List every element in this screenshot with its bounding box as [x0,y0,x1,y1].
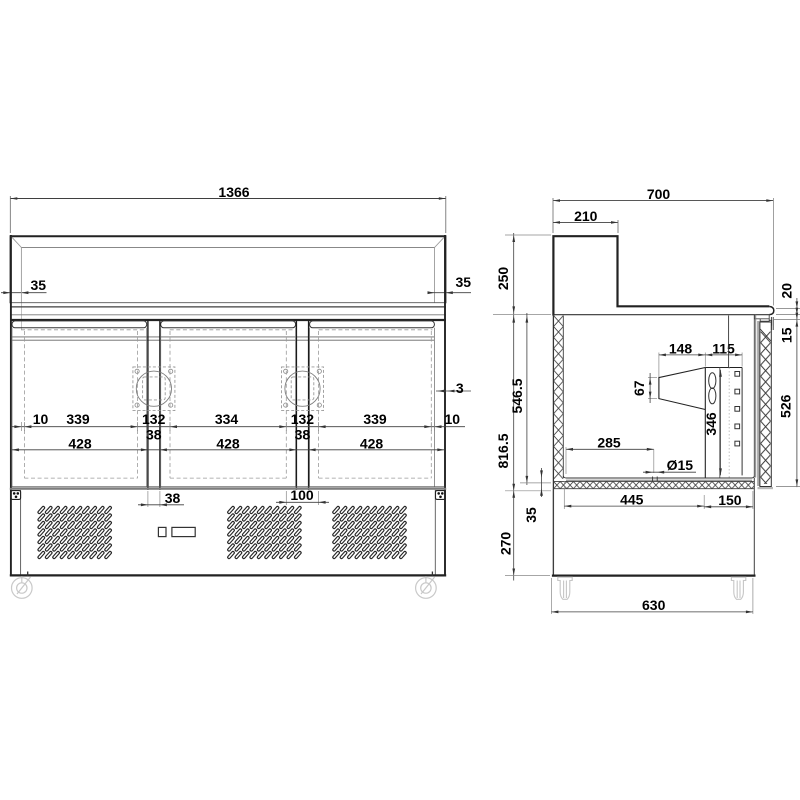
svg-text:20: 20 [778,283,794,299]
svg-text:346: 346 [703,412,719,436]
svg-text:630: 630 [642,597,666,613]
svg-text:270: 270 [497,532,513,556]
svg-text:148: 148 [669,340,693,356]
svg-text:115: 115 [712,340,735,356]
svg-text:428: 428 [68,436,92,452]
svg-text:15: 15 [778,327,794,343]
svg-text:132: 132 [142,411,166,427]
svg-text:10: 10 [33,411,49,427]
svg-text:334: 334 [215,411,239,427]
svg-text:339: 339 [363,411,387,427]
svg-text:35: 35 [456,274,472,290]
svg-text:285: 285 [597,435,621,451]
svg-text:250: 250 [495,267,511,291]
svg-text:100: 100 [290,487,314,503]
svg-text:700: 700 [647,186,671,202]
svg-text:3: 3 [456,380,464,396]
svg-text:35: 35 [31,277,47,293]
svg-text:1366: 1366 [218,184,249,200]
svg-text:35: 35 [523,507,539,523]
svg-text:428: 428 [360,436,384,452]
svg-text:132: 132 [291,411,315,427]
svg-text:210: 210 [574,208,598,224]
svg-text:38: 38 [165,490,181,506]
svg-text:38: 38 [146,426,162,442]
svg-text:546.5: 546.5 [509,378,525,413]
svg-text:38: 38 [295,426,311,442]
svg-text:526: 526 [778,394,794,418]
svg-text:816.5: 816.5 [495,433,511,468]
svg-text:10: 10 [445,411,461,427]
svg-text:339: 339 [66,411,90,427]
svg-text:Ø15: Ø15 [667,457,694,473]
svg-text:67: 67 [631,380,647,396]
svg-text:150: 150 [718,492,742,508]
svg-text:428: 428 [216,436,240,452]
svg-text:445: 445 [620,491,644,507]
